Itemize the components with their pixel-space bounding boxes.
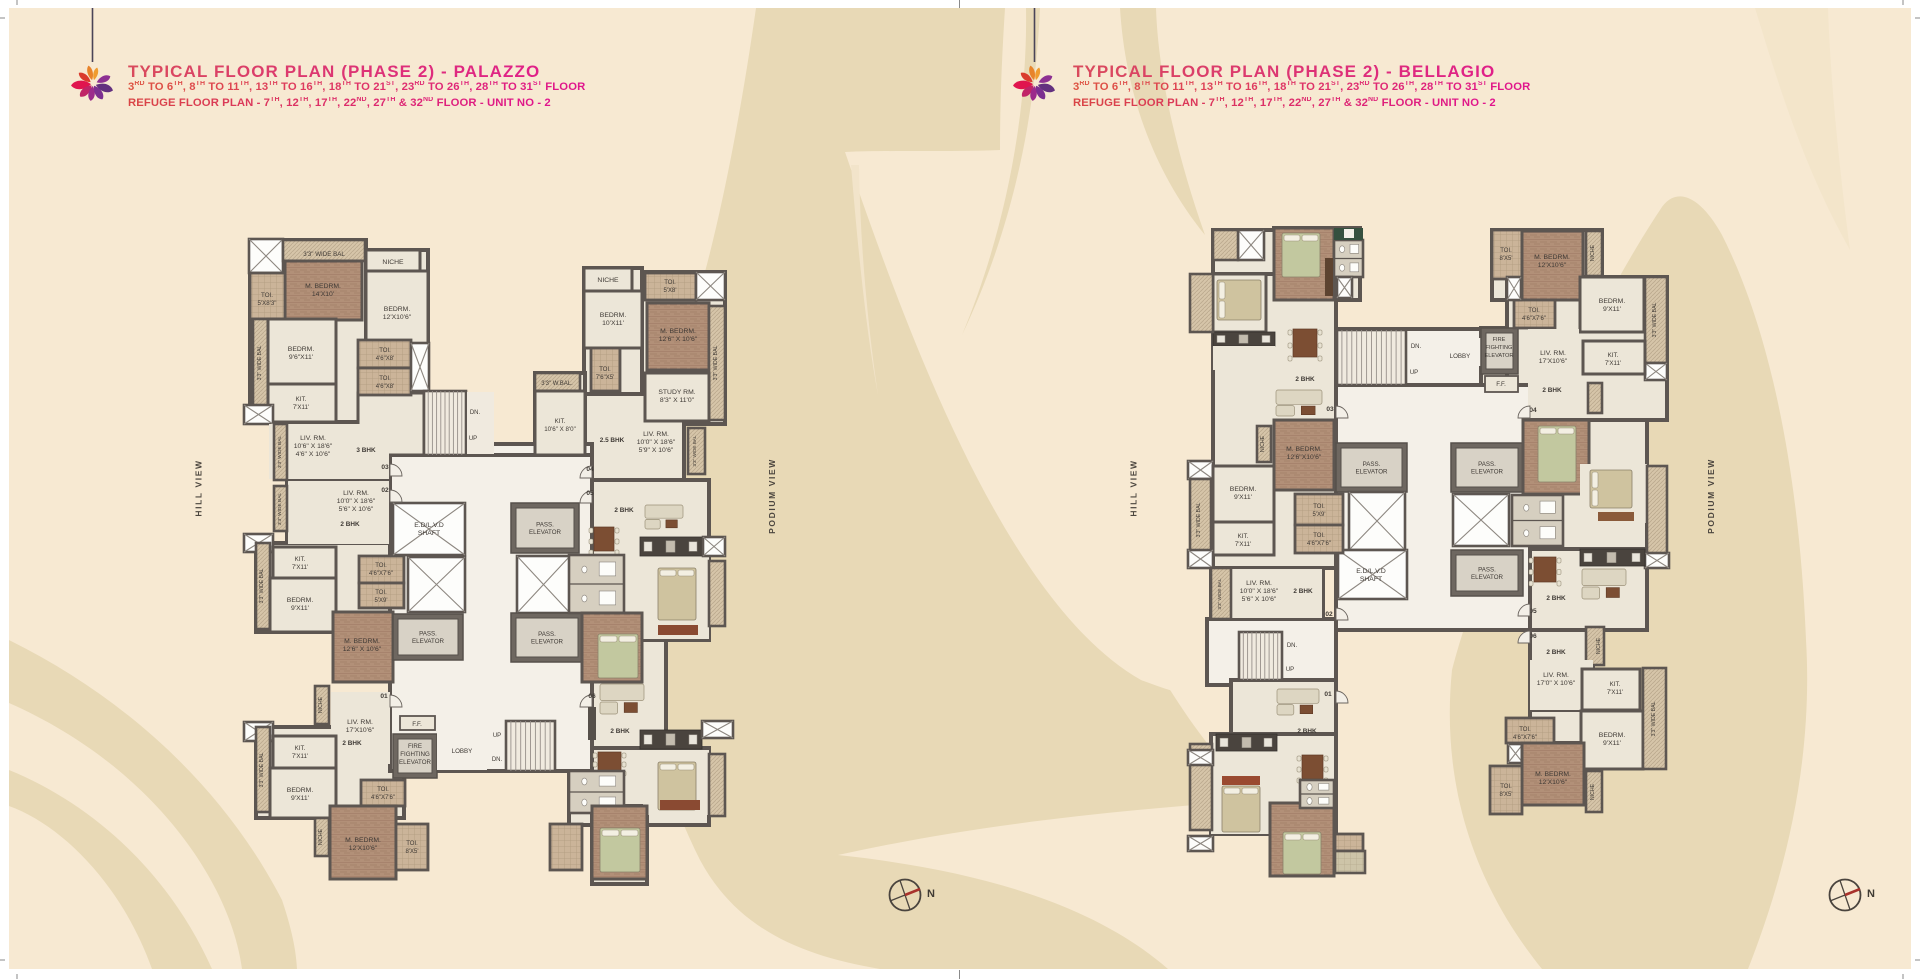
svg-text:KIT.: KIT. <box>1238 533 1249 540</box>
svg-text:05: 05 <box>586 490 594 497</box>
svg-text:BEDRM.: BEDRM. <box>287 787 314 794</box>
svg-text:TOI.: TOI. <box>261 292 273 299</box>
svg-text:F.F.: F.F. <box>412 721 422 728</box>
svg-text:8'X5': 8'X5' <box>1500 792 1513 798</box>
svg-text:03: 03 <box>1326 406 1334 413</box>
svg-text:PASS.: PASS. <box>1363 461 1381 468</box>
svg-text:3'3" WIDE BAL: 3'3" WIDE BAL <box>1196 502 1202 537</box>
svg-text:01: 01 <box>1324 691 1332 698</box>
svg-text:7'X11': 7'X11' <box>292 564 308 571</box>
svg-text:2 BHK: 2 BHK <box>340 521 360 528</box>
svg-text:10'6" X 8'0": 10'6" X 8'0" <box>544 426 576 433</box>
svg-text:M. BEDRM.: M. BEDRM. <box>1535 771 1571 778</box>
svg-text:3'3" WIDE BAL: 3'3" WIDE BAL <box>303 251 345 258</box>
svg-text:12'6"X10'6": 12'6"X10'6" <box>1287 454 1322 461</box>
svg-text:FIGHTING: FIGHTING <box>1486 345 1513 351</box>
svg-text:5'X9': 5'X9' <box>375 598 388 604</box>
svg-text:02: 02 <box>1325 611 1333 618</box>
svg-text:F.F.: F.F. <box>1496 381 1506 388</box>
svg-text:4'6"X7'6": 4'6"X7'6" <box>1307 541 1331 547</box>
svg-text:BEDRM.: BEDRM. <box>288 346 315 353</box>
svg-text:LIV. RM.: LIV. RM. <box>1543 672 1569 679</box>
svg-text:ELEVATOR: ELEVATOR <box>412 638 445 645</box>
svg-text:TOI.: TOI. <box>664 280 676 286</box>
svg-text:M. BEDRM.: M. BEDRM. <box>344 638 380 645</box>
svg-text:06: 06 <box>1529 633 1537 640</box>
svg-text:BEDRM.: BEDRM. <box>1599 732 1626 739</box>
svg-text:UP: UP <box>493 733 501 739</box>
svg-text:3'3" WIDE BAL: 3'3" WIDE BAL <box>277 493 283 526</box>
svg-text:12'X10'6": 12'X10'6" <box>383 314 412 321</box>
svg-text:NICHE: NICHE <box>318 696 324 713</box>
svg-text:M. BEDRM.: M. BEDRM. <box>345 837 381 844</box>
svg-text:2 BHK: 2 BHK <box>614 507 634 514</box>
svg-text:3'3" WIDE BAL: 3'3" WIDE BAL <box>277 436 283 469</box>
svg-text:SHAFT: SHAFT <box>1360 576 1382 583</box>
svg-text:7'X11': 7'X11' <box>1607 689 1623 696</box>
svg-text:TOI.: TOI. <box>1528 308 1540 314</box>
svg-text:PASS.: PASS. <box>536 522 554 529</box>
svg-text:17'0" X 10'6": 17'0" X 10'6" <box>1537 680 1576 687</box>
svg-text:5'9" X 10'6": 5'9" X 10'6" <box>639 447 674 454</box>
svg-text:LOBBY: LOBBY <box>452 748 473 755</box>
svg-text:12'6" X 10'6": 12'6" X 10'6" <box>343 646 382 653</box>
svg-text:4'6"X7'6": 4'6"X7'6" <box>1513 735 1537 741</box>
svg-text:FIRE: FIRE <box>408 743 422 750</box>
svg-text:3'3" WIDE BAL: 3'3" WIDE BAL <box>259 752 265 787</box>
svg-text:LIV. RM.: LIV. RM. <box>347 719 373 726</box>
svg-text:NICHE: NICHE <box>1590 783 1596 800</box>
svg-text:17'X10'6": 17'X10'6" <box>346 727 375 734</box>
svg-text:2 BHK: 2 BHK <box>342 740 362 747</box>
svg-text:10'6" X 18'6": 10'6" X 18'6" <box>294 443 333 450</box>
svg-text:BEDRM.: BEDRM. <box>384 306 411 313</box>
svg-text:LOBBY: LOBBY <box>1450 353 1471 360</box>
svg-text:ELEVATOR: ELEVATOR <box>1356 469 1389 476</box>
svg-text:5'X8'3": 5'X8'3" <box>257 300 276 307</box>
svg-text:12'X10'6": 12'X10'6" <box>1539 779 1568 786</box>
svg-text:SHAFT: SHAFT <box>418 530 440 537</box>
svg-text:TOI.: TOI. <box>379 376 391 382</box>
svg-text:DN.: DN. <box>470 410 481 416</box>
svg-text:12'X10'6": 12'X10'6" <box>349 845 378 852</box>
svg-text:3'3" W.BAL.: 3'3" W.BAL. <box>541 381 573 387</box>
svg-text:2 BHK: 2 BHK <box>1546 649 1566 656</box>
svg-text:M. BEDRM.: M. BEDRM. <box>660 328 696 335</box>
svg-text:05: 05 <box>1529 608 1537 615</box>
svg-text:PASS.: PASS. <box>419 631 437 638</box>
svg-text:3'3" WIDE BAL: 3'3" WIDE BAL <box>1652 302 1658 337</box>
svg-text:7'X11': 7'X11' <box>293 404 309 411</box>
svg-text:4'6"X7'6": 4'6"X7'6" <box>371 795 395 801</box>
svg-text:PASS.: PASS. <box>1478 567 1496 574</box>
svg-text:ELEVATOR: ELEVATOR <box>529 529 562 536</box>
svg-text:06: 06 <box>588 693 596 700</box>
svg-text:3 BHK: 3 BHK <box>356 447 376 454</box>
svg-text:NICHE: NICHE <box>382 259 404 266</box>
svg-text:7'X11': 7'X11' <box>292 753 308 760</box>
svg-text:10'X11': 10'X11' <box>602 320 624 327</box>
svg-text:3'3" WIDE BAL: 3'3" WIDE BAL <box>259 568 265 603</box>
svg-text:8'X5': 8'X5' <box>406 849 419 855</box>
svg-text:9'X11': 9'X11' <box>1603 740 1621 747</box>
svg-text:M. BEDRM.: M. BEDRM. <box>305 283 341 290</box>
svg-text:TOI.: TOI. <box>599 367 611 373</box>
svg-text:ELEVATOR: ELEVATOR <box>1471 574 1504 581</box>
svg-text:3'3" WIDE BAL: 3'3" WIDE BAL <box>1651 701 1657 736</box>
svg-text:ELEVATOR: ELEVATOR <box>531 639 564 646</box>
svg-text:3'3" WIDE BAL: 3'3" WIDE BAL <box>1217 578 1222 609</box>
svg-text:M. BEDRM.: M. BEDRM. <box>1286 446 1322 453</box>
svg-text:9'X11': 9'X11' <box>1603 306 1621 313</box>
svg-text:9'X11': 9'X11' <box>1234 494 1252 501</box>
svg-text:3'3" WIDE BAL: 3'3" WIDE BAL <box>713 345 719 380</box>
svg-text:7'6"X5': 7'6"X5' <box>596 375 614 381</box>
svg-text:2 BHK: 2 BHK <box>610 728 630 735</box>
svg-text:9'6"X11': 9'6"X11' <box>289 354 313 361</box>
svg-text:2 BHK: 2 BHK <box>1297 728 1317 735</box>
svg-text:STUDY RM.: STUDY RM. <box>658 389 695 396</box>
svg-text:4'6"X8': 4'6"X8' <box>376 384 394 390</box>
svg-text:12'6" X 10'6": 12'6" X 10'6" <box>659 336 698 343</box>
svg-text:5'X9': 5'X9' <box>1313 512 1326 518</box>
svg-text:NICHE: NICHE <box>1260 435 1266 452</box>
svg-text:TOI.: TOI. <box>379 348 391 354</box>
svg-text:2 BHK: 2 BHK <box>1295 376 1315 383</box>
svg-text:10'0" X 18'6": 10'0" X 18'6" <box>1240 588 1279 595</box>
svg-text:TOI.: TOI. <box>377 787 389 793</box>
svg-text:3'3" WIDE BAL: 3'3" WIDE BAL <box>257 345 263 380</box>
svg-text:TOI.: TOI. <box>375 563 387 569</box>
svg-text:NICHE: NICHE <box>1590 244 1596 261</box>
svg-text:03: 03 <box>381 464 389 471</box>
svg-text:KIT.: KIT. <box>295 745 306 752</box>
svg-text:UP: UP <box>469 436 477 442</box>
svg-text:LIV. RM.: LIV. RM. <box>343 490 369 497</box>
svg-text:TOI.: TOI. <box>1313 504 1325 510</box>
svg-text:01: 01 <box>380 693 388 700</box>
svg-text:N: N <box>1867 888 1875 900</box>
svg-text:5'X8': 5'X8' <box>664 288 677 294</box>
svg-text:5'6" X 10'6": 5'6" X 10'6" <box>1242 596 1277 603</box>
svg-text:8'X5': 8'X5' <box>1500 256 1513 262</box>
svg-text:02: 02 <box>381 487 389 494</box>
svg-text:4'6"X7'6": 4'6"X7'6" <box>369 571 393 577</box>
svg-text:DN.: DN. <box>1287 643 1298 649</box>
svg-text:2 BHK: 2 BHK <box>1546 595 1566 602</box>
svg-text:BEDRM.: BEDRM. <box>600 312 627 319</box>
svg-text:FIRE: FIRE <box>1493 337 1506 343</box>
svg-text:4'6" X 10'6": 4'6" X 10'6" <box>296 451 331 458</box>
svg-text:10'0" X 18'6": 10'0" X 18'6" <box>337 498 376 505</box>
svg-text:7'X11': 7'X11' <box>1605 360 1621 367</box>
svg-text:LIV. RM.: LIV. RM. <box>1540 350 1566 357</box>
svg-text:2 BHK: 2 BHK <box>1542 387 1562 394</box>
svg-text:DN.: DN. <box>1411 344 1422 350</box>
svg-text:TOI.: TOI. <box>1500 784 1512 790</box>
svg-text:KIT.: KIT. <box>1610 681 1621 688</box>
svg-text:TOI.: TOI. <box>1519 727 1531 733</box>
svg-text:ELEVATOR: ELEVATOR <box>399 759 432 766</box>
svg-text:NICHE: NICHE <box>318 828 324 845</box>
svg-text:5'6" X 10'6": 5'6" X 10'6" <box>339 506 374 513</box>
svg-text:9'X11': 9'X11' <box>291 605 309 612</box>
svg-text:UP: UP <box>1410 370 1418 376</box>
svg-text:04: 04 <box>586 466 594 473</box>
svg-text:LIV. RM.: LIV. RM. <box>1246 580 1272 587</box>
svg-text:NICHE: NICHE <box>597 277 619 284</box>
svg-text:3'3" WIDE BAL: 3'3" WIDE BAL <box>692 435 697 466</box>
svg-text:10'0" X 18'6": 10'0" X 18'6" <box>637 439 676 446</box>
svg-text:8'3" X 11'0": 8'3" X 11'0" <box>660 397 695 404</box>
svg-text:4'6"X8': 4'6"X8' <box>376 356 394 362</box>
svg-text:14'X10': 14'X10' <box>312 291 334 298</box>
svg-text:E.D/L.V.D: E.D/L.V.D <box>1356 568 1386 575</box>
svg-text:LIV. RM.: LIV. RM. <box>300 435 326 442</box>
svg-text:DN.: DN. <box>492 757 503 763</box>
svg-text:PASS.: PASS. <box>538 631 556 638</box>
svg-text:N: N <box>927 888 935 900</box>
svg-text:E.D/L.V.D: E.D/L.V.D <box>414 522 444 529</box>
svg-text:9'X11': 9'X11' <box>291 795 309 802</box>
svg-text:BEDRM.: BEDRM. <box>1230 486 1257 493</box>
svg-text:4'6"X7'6": 4'6"X7'6" <box>1522 316 1546 322</box>
svg-text:BEDRM.: BEDRM. <box>287 597 314 604</box>
svg-text:12'X10'6": 12'X10'6" <box>1538 262 1567 269</box>
svg-text:04: 04 <box>1529 407 1537 414</box>
svg-text:NICHE: NICHE <box>1596 637 1602 654</box>
svg-text:TOI.: TOI. <box>406 841 418 847</box>
svg-text:M. BEDRM.: M. BEDRM. <box>1534 254 1570 261</box>
svg-text:TOI.: TOI. <box>1313 533 1325 539</box>
svg-text:PASS.: PASS. <box>1478 461 1496 468</box>
svg-text:TOI.: TOI. <box>375 590 387 596</box>
svg-text:2 BHK: 2 BHK <box>1293 588 1313 595</box>
svg-text:BEDRM.: BEDRM. <box>1599 298 1626 305</box>
svg-text:KIT.: KIT. <box>295 556 306 563</box>
svg-text:2.5 BHK: 2.5 BHK <box>600 437 625 444</box>
svg-text:17'X10'6": 17'X10'6" <box>1539 358 1568 365</box>
svg-text:7'X11': 7'X11' <box>1235 541 1251 548</box>
svg-text:TOI.: TOI. <box>1500 248 1512 254</box>
svg-text:ELEVATOR: ELEVATOR <box>1485 353 1514 359</box>
svg-text:KIT.: KIT. <box>1608 352 1619 359</box>
svg-text:KIT.: KIT. <box>296 396 307 403</box>
svg-text:KIT.: KIT. <box>555 418 566 425</box>
svg-text:UP: UP <box>1286 667 1294 673</box>
svg-text:FIGHTING: FIGHTING <box>400 751 430 758</box>
svg-text:ELEVATOR: ELEVATOR <box>1471 469 1504 476</box>
svg-text:LIV. RM.: LIV. RM. <box>643 431 669 438</box>
